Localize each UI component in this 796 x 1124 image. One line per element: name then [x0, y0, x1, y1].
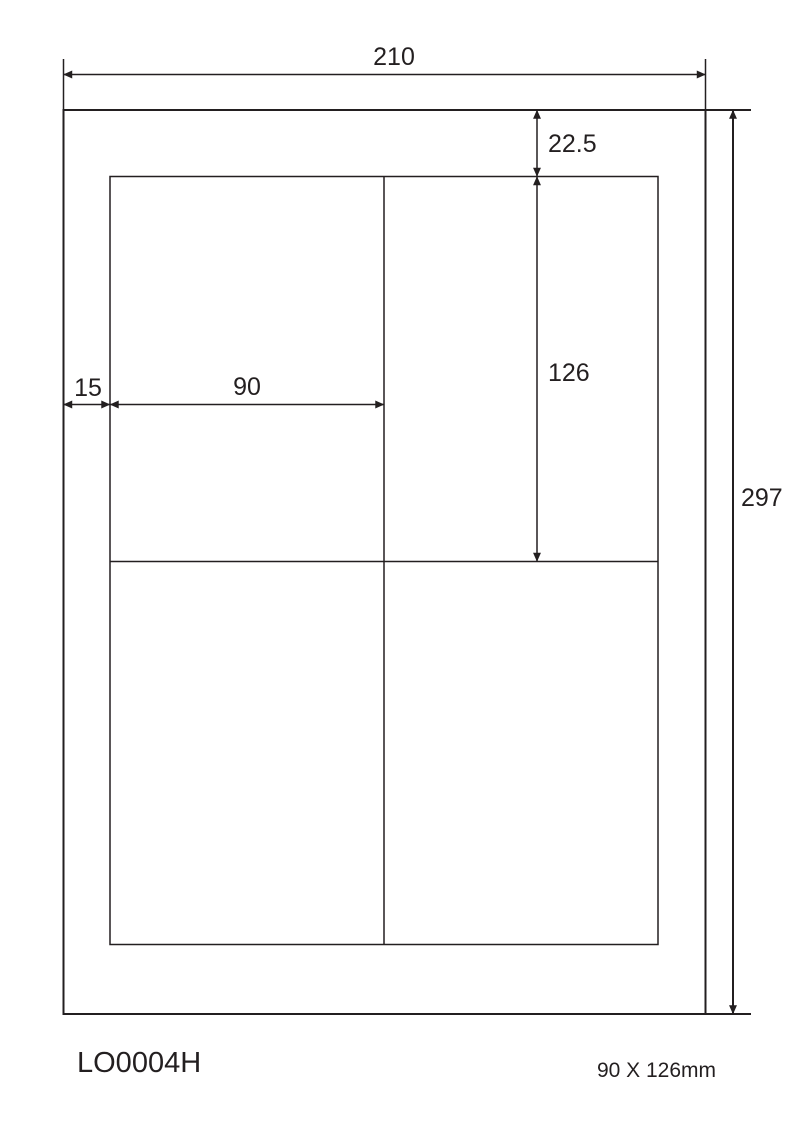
dim-label-left-margin: 15 — [74, 374, 102, 402]
dim-label-label-width: 90 — [233, 373, 261, 401]
label-size-caption: 90 X 126mm — [597, 1059, 716, 1082]
label-sheet-datasheet-page: 210 297 22.5 126 90 15 LO0004H 90 X 126m… — [0, 0, 796, 1124]
dim-label-label-height: 126 — [548, 359, 590, 387]
dim-label-top-margin: 22.5 — [548, 130, 597, 158]
product-code-caption: LO0004H — [77, 1047, 201, 1079]
label-sheet-diagram: 210 297 22.5 126 90 15 LO0004H 90 X 126m… — [0, 0, 796, 1124]
dim-label-page-width: 210 — [373, 43, 415, 71]
dim-label-page-height: 297 — [741, 484, 783, 512]
